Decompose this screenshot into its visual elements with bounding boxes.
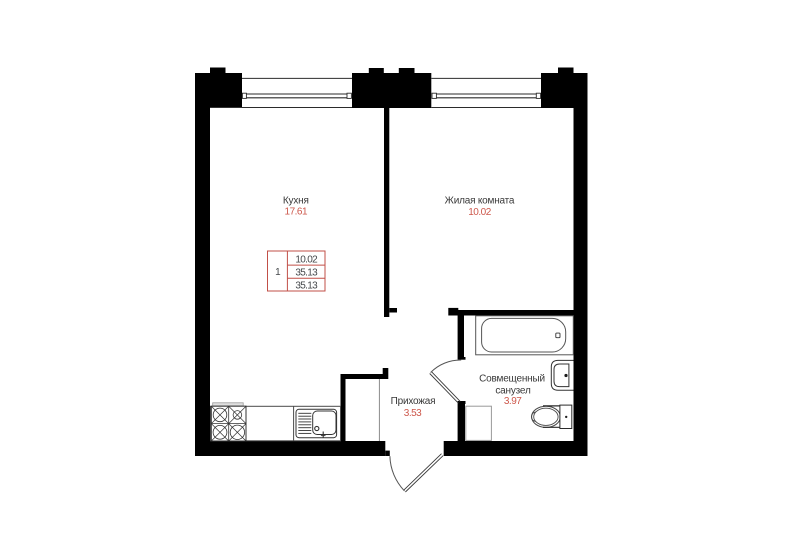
- svg-text:3.97: 3.97: [504, 396, 522, 407]
- svg-text:Кухня: Кухня: [283, 196, 309, 207]
- svg-text:Совмещенный: Совмещенный: [479, 373, 545, 384]
- svg-text:35.13: 35.13: [295, 281, 318, 292]
- svg-text:Прихожая: Прихожая: [391, 396, 436, 407]
- svg-text:3.53: 3.53: [404, 408, 422, 419]
- svg-text:35.13: 35.13: [295, 268, 318, 279]
- svg-text:10.02: 10.02: [468, 207, 491, 218]
- svg-text:Жилая комната: Жилая комната: [445, 196, 515, 207]
- svg-text:10.02: 10.02: [295, 254, 318, 265]
- svg-text:17.61: 17.61: [285, 207, 308, 218]
